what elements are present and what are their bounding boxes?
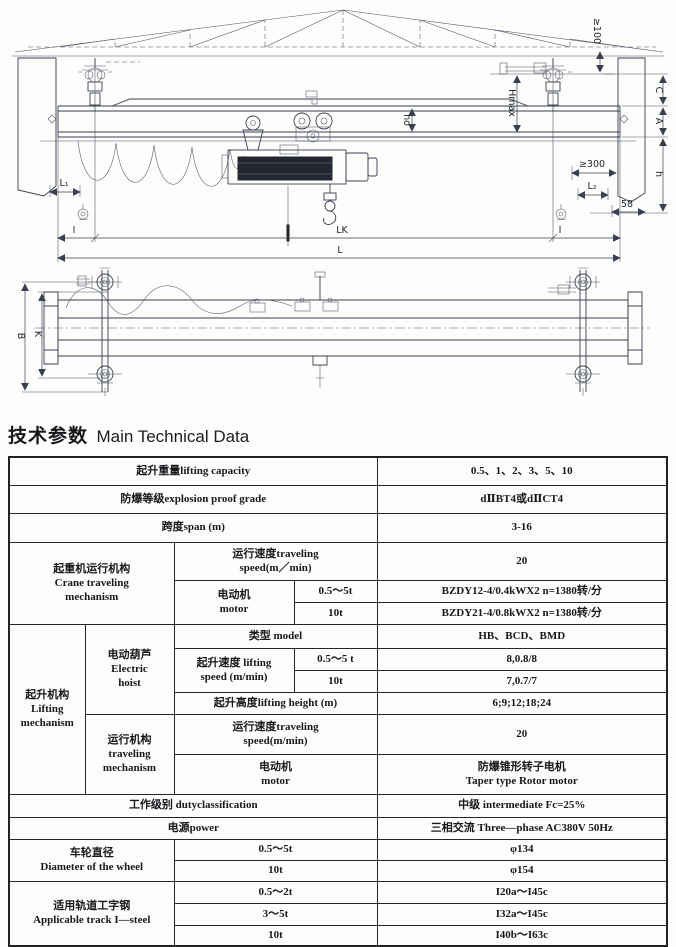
track-group-label: 适用轨道工字钢 Applicable track I—steel [9, 881, 174, 946]
right-end-carriage [548, 268, 600, 396]
model-label: 类型 model [174, 624, 377, 648]
dim-label-c: C [653, 87, 664, 94]
lift-speed-t2: 10t [294, 670, 377, 692]
dim-label-clearance-side: ≥300 [579, 159, 605, 170]
festoon-cable-front [78, 141, 245, 186]
lifting-mechanism-group-label: 起升机构 Lifting mechanism [9, 624, 85, 794]
right-wall-hatch [618, 58, 645, 202]
track-t3: 10t [174, 925, 377, 946]
lift-height-label: 起升高度lifting height (m) [174, 692, 377, 714]
wheel-v2: φ154 [377, 860, 667, 881]
span-value: 3-16 [377, 513, 667, 542]
model-value: HB、BCD、BMD [377, 624, 667, 648]
track-t2: 3～5t [174, 903, 377, 925]
wheel-diameter-group-label: 车轮直径 Diameter of the wheel [9, 839, 174, 881]
front-view-dimensions: ≥100 Hmax ho C A h ≥300 58 L₂ L₁ [50, 18, 668, 262]
lift-speed-t1: 0.5～5 t [294, 648, 377, 670]
left-buffer-icon [78, 204, 88, 220]
wheel-t2: 10t [174, 860, 377, 881]
dim-label-h: h [653, 171, 664, 177]
left-hanger-trolley [78, 58, 140, 112]
dim-label-ho: ho [401, 114, 412, 126]
track-v1: I20a～I45c [377, 881, 667, 903]
hoist-traveling-speed-value: 20 [377, 714, 667, 754]
explosion-grade-label: 防爆等级explosion proof grade [9, 485, 377, 513]
dim-label-b: B [15, 333, 26, 340]
right-buffer-icon [556, 204, 566, 220]
power-label: 电源power [9, 817, 377, 839]
left-end-carriage [76, 268, 122, 396]
crane-traveling-speed-value: 20 [377, 542, 667, 580]
dim-label-58: 58 [621, 199, 633, 210]
duty-class-label: 工作级别 dutyclassification [9, 794, 377, 817]
duty-class-value: 中级 intermediate Fc=25% [377, 794, 667, 817]
crane-technical-drawing: ≥100 Hmax ho C A h ≥300 58 L₂ L₁ [0, 0, 676, 408]
wheel-v1: φ134 [377, 839, 667, 860]
lift-height-value: 6;9;12;18;24 [377, 692, 667, 714]
section-title-zh: 技术参数 [8, 426, 88, 447]
crane-motor-v2: BZDY21-4/0.8kWX2 n=1380转/分 [377, 602, 667, 624]
section-title: 技术参数 Main Technical Data [8, 421, 676, 448]
electric-hoist-group-label: 电动葫芦 Electric hoist [85, 624, 174, 714]
crane-motor-t1: 0.5～5t [294, 580, 377, 602]
span-label: 跨度span (m) [9, 513, 377, 542]
hoist-traveling-group-label: 运行机构 traveling mechanism [85, 714, 174, 794]
crane-traveling-group-label: 起重机运行机构 Crane traveling mechanism [9, 542, 174, 624]
left-wall-hatch [18, 58, 56, 196]
lifting-capacity-value: 0.5、1、2、3、5、10 [377, 457, 667, 485]
track-v2: I32a～I45c [377, 903, 667, 925]
electric-hoist-drawing [222, 113, 377, 246]
bridge-girder-drawing [40, 91, 636, 141]
wheel-t1: 0.5～5t [174, 839, 377, 860]
hoist-traveling-speed-label: 运行速度traveling speed(m/min) [174, 714, 377, 754]
hoist-motor-label: 电动机 motor [174, 754, 377, 794]
dim-label-l1: L₁ [59, 178, 68, 189]
track-t1: 0.5～2t [174, 881, 377, 903]
lift-speed-label: 起升速度 lifting speed (m/min) [174, 648, 294, 692]
catalog-page: ≥100 Hmax ho C A h ≥300 58 L₂ L₁ [0, 0, 676, 947]
dim-label-hmax: Hmax [506, 89, 517, 117]
hook-drawing [323, 184, 336, 225]
dim-label-lk: LK [336, 225, 348, 236]
track-v3: I40b～I63c [377, 925, 667, 946]
plan-view: B K [15, 268, 650, 396]
rail-symbol-left: I [73, 225, 76, 236]
lift-speed-v2: 7,0.7/7 [377, 670, 667, 692]
explosion-grade-value: dⅡBT4或dⅡCT4 [377, 485, 667, 513]
rail-symbol-right: I [559, 225, 562, 236]
front-view: ≥100 Hmax ho C A h ≥300 58 L₂ L₁ [12, 10, 668, 262]
lifting-capacity-label: 起升重量lifting capacity [9, 457, 377, 485]
center-fitting [313, 272, 327, 388]
crane-motor-label: 电动机 motor [174, 580, 294, 624]
crane-motor-v1: BZDY12-4/0.4kWX2 n=1380转/分 [377, 580, 667, 602]
crane-motor-t2: 10t [294, 602, 377, 624]
dim-label-l2: L₂ [587, 181, 596, 192]
dim-label-k: K [32, 331, 43, 338]
girder-plan-drawing [35, 292, 650, 364]
hoist-motor-value: 防爆锥形转子电机 Taper type Rotor motor [377, 754, 667, 794]
dim-label-clearance-top: ≥100 [591, 18, 602, 44]
section-title-en: Main Technical Data [96, 427, 249, 446]
dim-label-l: L [337, 245, 343, 256]
roof-truss-drawing [12, 10, 664, 56]
lift-speed-v1: 8,0.8/8 [377, 648, 667, 670]
dim-label-a: A [653, 118, 664, 125]
crane-traveling-speed-label: 运行速度traveling speed(m／min) [174, 542, 377, 580]
spec-table: 起升重量lifting capacity 0.5、1、2、3、5、10 防爆等级… [8, 456, 668, 947]
power-value: 三相交流 Three—phase AC380V 50Hz [377, 817, 667, 839]
